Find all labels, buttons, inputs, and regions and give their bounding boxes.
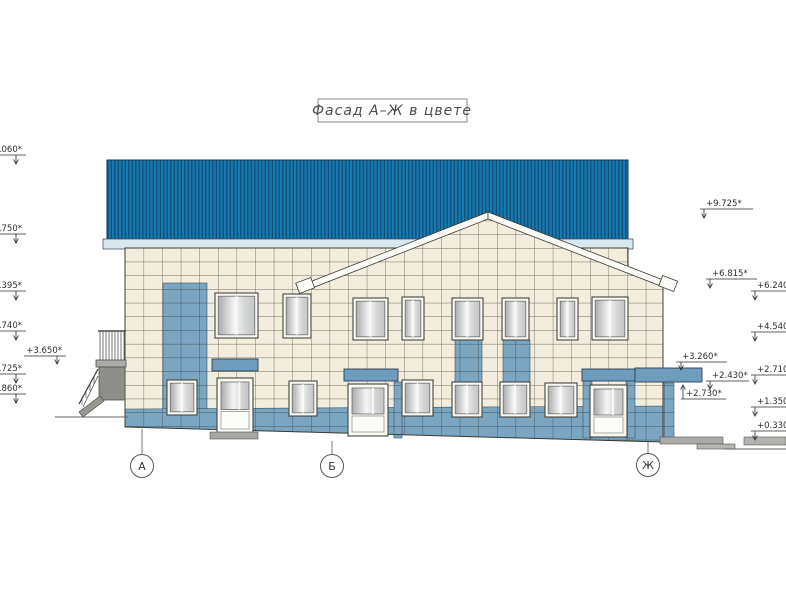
- title-box: Фасад А–Ж в цвете: [312, 99, 472, 122]
- window-upper: [353, 298, 388, 340]
- main-roof: [103, 160, 633, 249]
- elevation-value: +2.710*: [757, 365, 786, 375]
- window-lower: [402, 380, 433, 416]
- window-upper: [283, 294, 311, 338]
- elevation-value: +6.815*: [712, 269, 748, 279]
- elevation-value: .725*: [0, 364, 22, 374]
- roof-corrugation: [107, 160, 628, 239]
- elevation-value: .395*: [0, 281, 22, 291]
- facade-elevation-drawing: .060*.750*.395*.740*+3.650*.725*.860*+9.…: [0, 0, 786, 590]
- landing-slab: [96, 360, 126, 367]
- step-upper: [660, 437, 723, 444]
- window-lower: [289, 381, 317, 416]
- elevation-value: +3.650*: [26, 346, 62, 356]
- elevation-value: .060*: [0, 145, 22, 155]
- elevation-value: +9.725*: [706, 199, 742, 209]
- elevation-value: +4.540*: [757, 322, 786, 332]
- elevation-value: .750*: [0, 224, 22, 234]
- elevation-value: +0.330*: [757, 421, 786, 431]
- axis-label: Б: [328, 460, 336, 473]
- entrance-door: [217, 378, 253, 433]
- elevation-value: +2.430*: [712, 371, 748, 381]
- canopy-corner: [635, 368, 702, 382]
- curb-right: [744, 437, 786, 445]
- elevation-value: .860*: [0, 384, 22, 394]
- elevation-value: +1.350*: [757, 397, 786, 407]
- elevation-value: +3.260*: [682, 352, 718, 362]
- step-lower: [697, 444, 735, 449]
- window-upper: [402, 297, 424, 340]
- window-upper: [502, 298, 529, 340]
- elevation-value: +6.240*: [757, 281, 786, 291]
- axis-label: Ж: [642, 459, 654, 472]
- window-upper: [557, 298, 578, 340]
- entrance-a-step: [210, 432, 258, 439]
- window-lower: [452, 382, 482, 417]
- window-lower: [500, 382, 530, 417]
- sign-panel-entrance-a: [212, 359, 258, 371]
- drawing-title: Фасад А–Ж в цвете: [312, 103, 472, 119]
- elevation-value: .740*: [0, 321, 22, 331]
- window-upper: [452, 298, 483, 340]
- axis-label: А: [138, 460, 146, 473]
- entrance-door: [590, 385, 627, 437]
- canopy-entrance-zh: [582, 369, 635, 381]
- window-upper: [215, 293, 258, 338]
- window-lower: [545, 383, 577, 417]
- window-lower: [167, 380, 197, 415]
- canopy-entrance-b: [344, 369, 398, 381]
- entrance-door: [348, 384, 388, 436]
- elevation-value: +2.730*: [686, 389, 722, 399]
- window-upper: [592, 297, 628, 340]
- landing-support: [99, 367, 125, 400]
